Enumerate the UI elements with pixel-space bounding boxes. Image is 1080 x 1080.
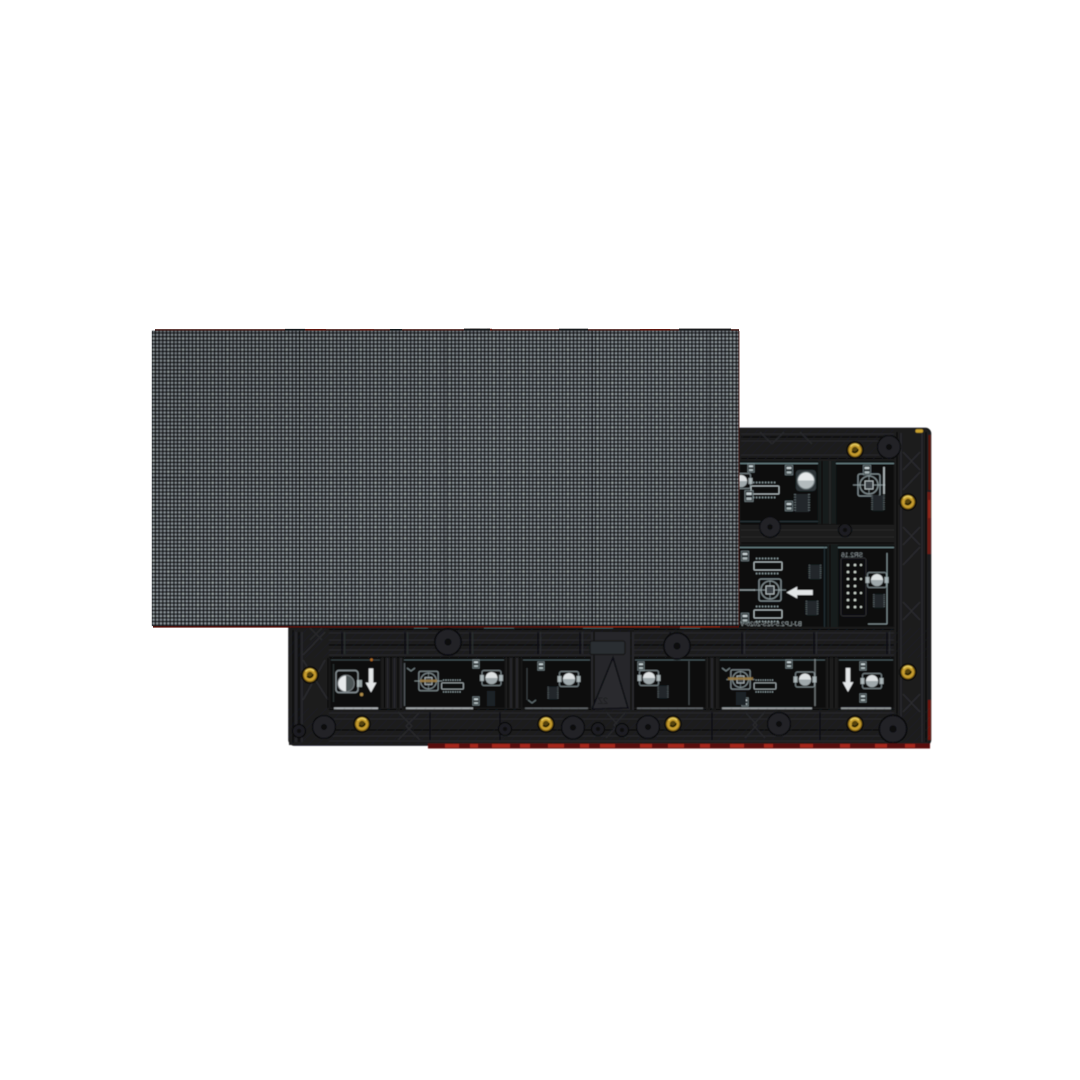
svg-text:2Z: 2Z [597,696,608,706]
